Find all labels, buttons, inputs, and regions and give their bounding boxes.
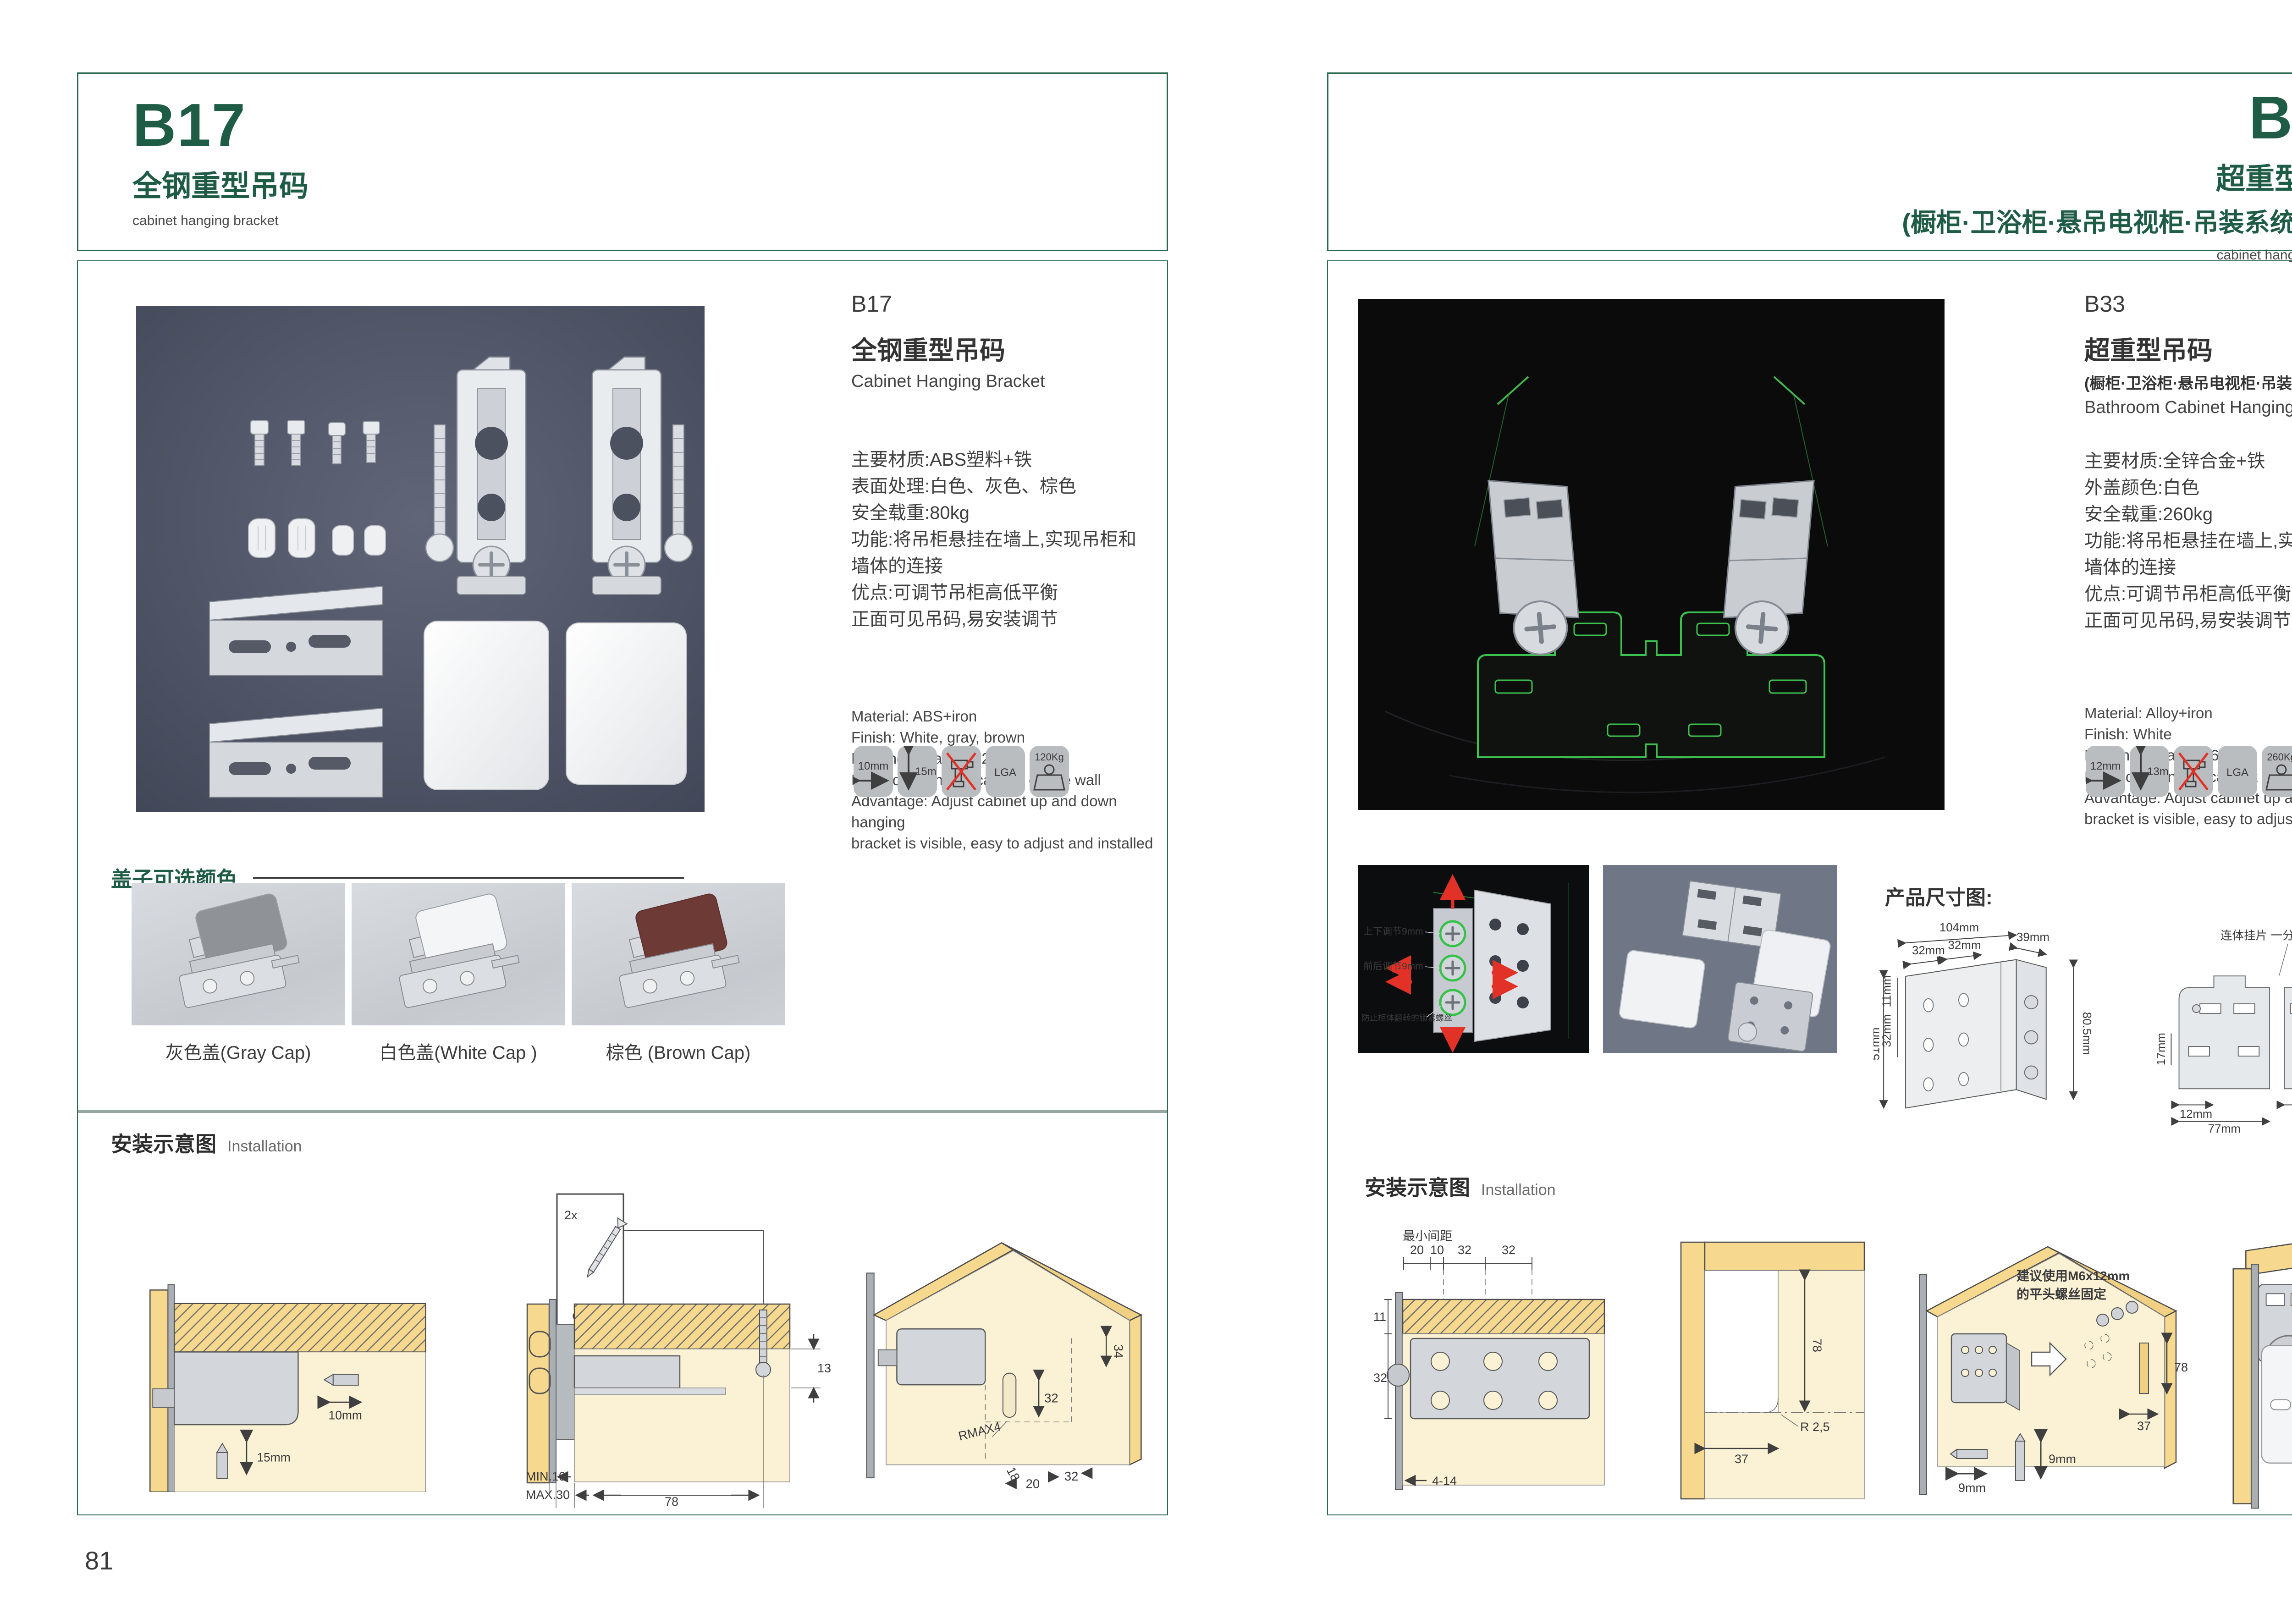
cap-option-white: 白色盖(White Cap ): [352, 883, 565, 1064]
dim-label: 51mm: [1873, 1028, 1882, 1061]
dim-label: 11mm: [1880, 975, 1893, 1007]
bracket-with-cover: [2259, 1285, 2292, 1463]
info-code: B17: [851, 291, 1158, 317]
dim-label: 80.5mm: [2080, 1012, 2093, 1055]
spec-line: 墙体的连接: [851, 553, 1158, 579]
left-main-product-photo: [136, 306, 705, 812]
dim-label: 34: [1112, 1344, 1126, 1358]
cap-option-brown: 棕色 (Brown Cap): [572, 883, 785, 1064]
spec-line: 优点:可调节吊柜高低平衡: [2084, 581, 2292, 607]
right-install-diagram-2: 78 R 2,5 37: [1667, 1228, 1878, 1513]
icon-lga: LGA: [986, 746, 1025, 797]
dim-label: 9mm: [2049, 1452, 2076, 1466]
note-line-1: 建议使用M6x12mm: [2017, 1269, 2130, 1283]
section-divider: [78, 1110, 1167, 1113]
right-installation-header: 安装示意图 Installation: [1365, 1171, 1556, 1201]
info-title-cn: 全钢重型吊码: [851, 330, 1158, 367]
gray-cap-photo: [132, 883, 345, 1025]
lga-icon: LGA: [986, 746, 1025, 797]
left-install-diagram-3: 34 32 RMAX4 18 20 32: [853, 1199, 1160, 1506]
icon-label: LGA: [2226, 766, 2248, 779]
icon-hole-width: 12mm: [2086, 746, 2125, 797]
screw-count: 2x: [564, 1208, 578, 1222]
spec-line: 主要材质:ABS塑料+铁: [851, 446, 1158, 473]
width-arrow-icon: 12mm: [2086, 746, 2125, 797]
dim-label: 最小间距: [1403, 1229, 1452, 1243]
dim-label: 77mm: [2208, 1123, 2241, 1134]
icon-hole-height: 13mm: [2130, 746, 2169, 797]
left-product-subtitle-en: cabinet hanging bracket: [132, 213, 1167, 229]
left-header: B17 全钢重型吊码 cabinet hanging bracket: [77, 72, 1168, 251]
dim-label: 78: [665, 1495, 678, 1508]
cap-color-options: 灰色盖(Gray Cap) 白色盖(White Cap ): [132, 883, 785, 1064]
section-title: 安装示意图: [1365, 1171, 1470, 1201]
white-cover-1: [424, 621, 549, 790]
bit-horizontal: 9mm: [1950, 1449, 1987, 1495]
spec-cn: 主要材质:全锌合金+铁 外盖颜色:白色 安全载重:260kg 功能:将吊柜悬挂在…: [2084, 448, 2292, 634]
plate-note: 连体挂片 一分为二: [2220, 929, 2292, 942]
dim-label: 12mm: [2180, 1108, 2212, 1121]
left-install-diagram-2: 2x φ4mm: [516, 1187, 832, 1508]
load-icon: 120Kg: [1030, 746, 1069, 797]
dim-label: 4-14: [1432, 1474, 1457, 1488]
spec-line: 功能:将吊柜悬挂在墙上,实现吊柜和: [2084, 528, 2292, 554]
icon-no-drill: [942, 746, 981, 797]
right-product-title-cn: 超重型吊码: [1328, 155, 2292, 198]
left-product-title-cn: 全钢重型吊码: [132, 163, 1167, 205]
left-installation-header: 安装示意图 Installation: [111, 1128, 302, 1158]
page-number-left: 81: [85, 1546, 113, 1575]
cap-caption: 灰色盖(Gray Cap): [132, 1038, 345, 1064]
label-depth-adjust: 前后调节9mm: [1363, 961, 1423, 972]
dimensions-title: 产品尺寸图:: [1885, 881, 1993, 910]
dim-label: 78: [1810, 1338, 1824, 1352]
adjustment-screws: [1440, 921, 1465, 1015]
spec-line: 表面处理:白色、灰色、棕色: [851, 473, 1158, 500]
dim-label: 32: [1373, 1371, 1387, 1385]
catalog-spread: B17 全钢重型吊码 cabinet hanging bracket: [0, 0, 2292, 1624]
dim-label: 32mm: [1912, 944, 1945, 957]
dim-label: 32mm: [1880, 1014, 1893, 1047]
wall-plate-1: [209, 586, 383, 675]
icon-lga: LGA: [2218, 746, 2257, 797]
width-arrow-icon: 10mm: [854, 746, 893, 797]
dim-label: 32: [1044, 1391, 1058, 1405]
spec-line: 功能:将吊柜悬挂在墙上,实现吊柜和: [851, 526, 1158, 553]
icon-label: 12mm: [2090, 760, 2121, 772]
icon-label: 15mm: [915, 765, 937, 778]
dim-label: 39mm: [2017, 931, 2050, 944]
dim-label: 32: [1064, 1469, 1078, 1483]
no-drill-icon: [942, 746, 981, 797]
dim-label: 37: [1735, 1452, 1748, 1466]
lga-icon: LGA: [2218, 746, 2257, 797]
icon-label: 260Kg: [2267, 751, 2292, 763]
dim-label: MAX.30: [526, 1488, 570, 1502]
bracket-part: [1728, 982, 1813, 1051]
spec-line: 墙体的连接: [2084, 554, 2292, 581]
section-subtitle: Installation: [227, 1138, 302, 1156]
dim-label: 104mm: [1939, 921, 1979, 934]
cap-option-gray: 灰色盖(Gray Cap): [132, 883, 345, 1064]
spec-line: 正面可见吊码,易安装调节: [851, 606, 1158, 633]
right-product-usage: (橱柜·卫浴柜·悬吊电视柜·吊装系统 专用): [1328, 202, 2292, 239]
icon-label: 10mm: [858, 760, 889, 772]
adjustment-detail-photo: 上下调节9mm 前后调节9mm 防止柜体翻转的锁紧螺丝: [1358, 865, 1589, 1053]
left-body: B17 全钢重型吊码 Cabinet Hanging Bracket 主要材质:…: [77, 260, 1168, 1515]
spec-line: bracket is visible, easy to adjust and i…: [2084, 809, 2292, 830]
spec-line: 优点:可调节吊柜高低平衡: [851, 579, 1158, 606]
page-left: B17 全钢重型吊码 cabinet hanging bracket: [77, 0, 1168, 1624]
right-header: B33 超重型吊码 (橱柜·卫浴柜·悬吊电视柜·吊装系统 专用) cabinet…: [1327, 72, 2292, 251]
left-product-code: B17: [132, 95, 1167, 155]
cap-caption: 棕色 (Brown Cap): [572, 1038, 785, 1064]
icon-label: 13mm: [2147, 765, 2169, 778]
parts-photo: [1603, 865, 1837, 1053]
dim-label: R 2,5: [1800, 1420, 1830, 1434]
icon-load-capacity: 120Kg: [1030, 746, 1069, 797]
dim-label: 13: [817, 1361, 831, 1375]
dim-label: 37: [2137, 1419, 2151, 1433]
spec-line: 外盖颜色:白色: [2084, 474, 2292, 501]
icon-no-drill: [2174, 746, 2213, 797]
dim-label: 20: [1410, 1243, 1424, 1257]
info-title-en: Cabinet Hanging Bracket: [851, 372, 1158, 391]
cap-caption: 白色盖(White Cap ): [352, 1038, 565, 1064]
spec-line: bracket is visible, easy to adjust and i…: [851, 833, 1158, 854]
no-drill-icon: [2174, 746, 2213, 797]
right-body: B33 超重型吊码 (橱柜·卫浴柜·悬吊电视柜·吊装系统 专用) Bathroo…: [1327, 260, 2292, 1515]
spec-line: 安全载重:260kg: [2084, 501, 2292, 528]
info-title-cn: 超重型吊码: [2084, 330, 2292, 367]
icon-label: 120Kg: [1035, 751, 1064, 763]
left-feature-icons: 10mm 15mm: [854, 746, 1069, 797]
spec-line: 安全载重:80kg: [851, 500, 1158, 526]
page-right: B33 超重型吊码 (橱柜·卫浴柜·悬吊电视柜·吊装系统 专用) cabinet…: [1327, 0, 2292, 1624]
dim-label: 10mm: [329, 1408, 362, 1422]
dim-label: 32mm: [1948, 939, 1981, 952]
white-cover-2: [566, 623, 686, 784]
dim-13: 13: [791, 1334, 831, 1403]
dim-label: 78: [2174, 1360, 2188, 1374]
bracket: [1951, 1334, 2019, 1410]
note-line-2: 的平头螺丝固定: [2017, 1287, 2106, 1301]
spec-line: 正面可见吊码,易安装调节: [2084, 607, 2292, 634]
white-cover-part-2: [1619, 950, 1705, 1029]
right-feature-icons: 12mm 13mm: [2086, 746, 2292, 797]
icon-label: LGA: [994, 766, 1016, 779]
dim-label: 17mm: [2155, 1033, 2168, 1065]
dim-label: 11: [1373, 1310, 1386, 1324]
dim-label: 32: [1458, 1243, 1471, 1257]
dim-label: 10: [1430, 1243, 1444, 1257]
height-arrow-icon: 13mm: [2130, 746, 2169, 797]
label-lock-screw: 防止柜体翻转的锁紧螺丝: [1361, 1013, 1452, 1023]
info-usage: (橱柜·卫浴柜·悬吊电视柜·吊装系统 专用): [2084, 371, 2292, 393]
label-vertical-adjust: 上下调节9mm: [1363, 926, 1423, 937]
load-icon: 260Kg: [2262, 746, 2292, 797]
right-install-diagram-4: [2226, 1210, 2292, 1522]
dim-label: 32: [1502, 1243, 1515, 1257]
right-product-code: B33: [1328, 88, 2292, 148]
right-install-diagram-1: 最小间距 20 10 32 32 11 32 4-14: [1372, 1224, 1633, 1513]
spec-line: Finish: White, gray, brown: [851, 727, 1158, 748]
section-subtitle: Installation: [1481, 1181, 1556, 1199]
spec-cn: 主要材质:ABS塑料+铁 表面处理:白色、灰色、棕色 安全载重:80kg 功能:…: [851, 446, 1158, 633]
info-title-en: Bathroom Cabinet Hanging Bracket: [2084, 398, 2292, 418]
dimension-drawing-bracket: 104mm 32mm 32mm 39mm 80.5mm 11mm 32mm 51…: [1873, 912, 2139, 1123]
icon-hole-width: 10mm: [854, 746, 893, 797]
right-main-product-photo: [1358, 299, 1945, 810]
brown-cap-photo: [572, 883, 785, 1025]
left-install-diagram-1: 10mm 15mm: [147, 1277, 468, 1492]
icon-hole-height: 15mm: [898, 746, 937, 797]
spec-line: Finish: White: [2084, 724, 2292, 745]
height-arrow-icon: 15mm: [898, 746, 937, 797]
info-code: B33: [2084, 291, 2292, 317]
dimension-drawing-plates: 连体挂片 一分为二 55mm 39mm 55mm 8mm: [2149, 917, 2292, 1134]
spec-line: 主要材质:全锌合金+铁: [2084, 448, 2292, 474]
white-cap-photo: [352, 883, 565, 1025]
dim-label: 9mm: [1958, 1481, 1986, 1495]
right-install-diagram-3: 建议使用M6x12mm 的平头螺丝固定 78 37: [1901, 1206, 2208, 1522]
spec-line: Material: ABS+iron: [851, 706, 1158, 727]
dim-label: 20: [1026, 1476, 1040, 1491]
section-title: 安装示意图: [111, 1128, 216, 1158]
dim-label: 18: [1004, 1464, 1023, 1483]
icon-load-capacity: 260Kg: [2262, 746, 2292, 797]
spec-line: Material: Alloy+iron: [2084, 703, 2292, 724]
dim-label: 15mm: [257, 1450, 290, 1464]
wall-plate-2: [209, 708, 383, 797]
title-rule: [253, 877, 684, 879]
